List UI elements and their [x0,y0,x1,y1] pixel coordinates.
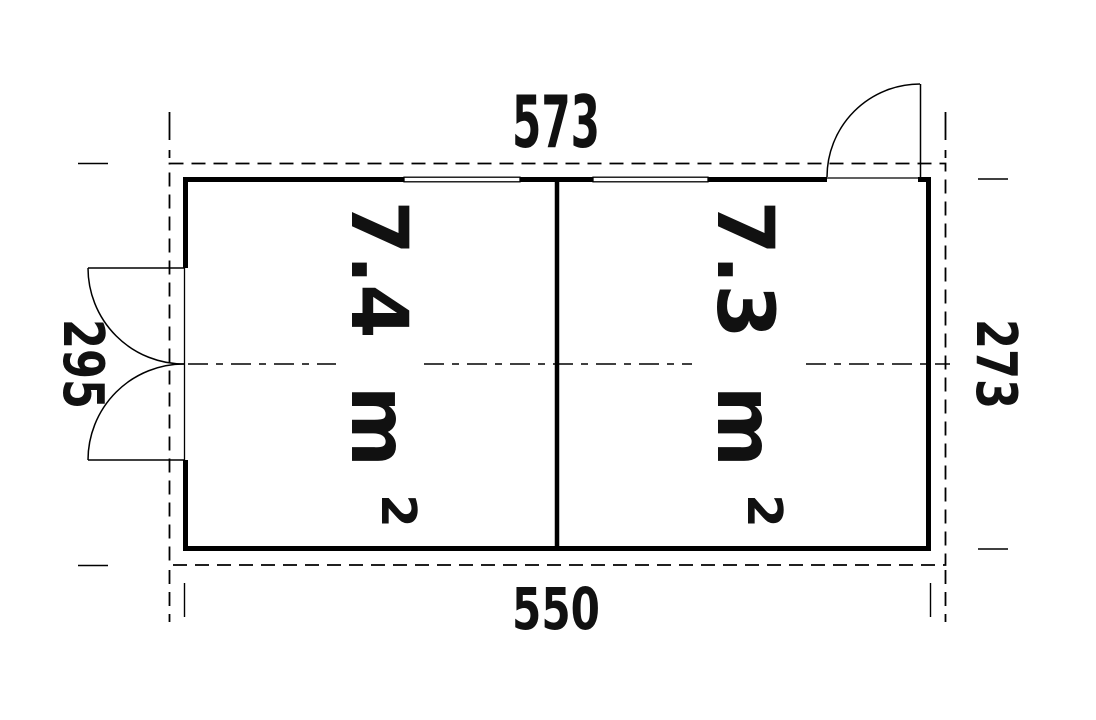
floor-plan-canvas: 573 550 295 273 7.4 m 2 7.3 m 2 [0,0,1096,720]
window-1 [404,177,520,182]
room-2-area-value: 7.3 [699,200,789,338]
room-area-label-2: 7.3 m 2 [699,200,792,527]
dimension-label-bottom: 550 [512,575,600,643]
dimension-label-top: 573 [512,80,600,164]
room-1-area-superscript: 2 [370,494,426,527]
dimension-label-left: 295 [50,319,115,409]
room-2-area-unit: m [699,386,789,467]
room-area-label-1: 7.4 m 2 [333,200,426,527]
floor-plan-page: 573 550 295 273 7.4 m 2 7.3 m 2 [0,0,1096,720]
room-1-area-unit: m [333,386,423,467]
dimension-label-right: 273 [963,319,1028,409]
room-2-area-superscript: 2 [736,494,792,527]
window-2 [593,177,708,182]
room-1-area-value: 7.4 [333,200,423,338]
